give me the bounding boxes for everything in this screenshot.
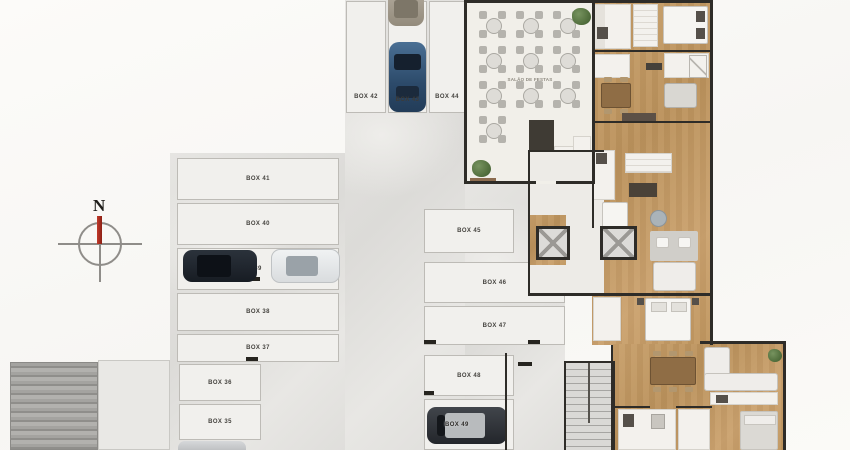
wall (592, 50, 713, 52)
wall (528, 150, 530, 295)
closet-a (633, 4, 658, 47)
stove-icon (716, 395, 728, 403)
parking-box-41: BOX 41 (177, 158, 339, 200)
elevator-icon (536, 226, 570, 260)
parking-box-35-label: BOX 35 (208, 419, 232, 425)
car-windshield (394, 54, 421, 70)
pillow (696, 28, 705, 39)
parking-box-40: BOX 40 (177, 203, 339, 245)
wall (564, 361, 615, 363)
party-table (515, 10, 545, 40)
counter-b (710, 392, 778, 405)
door-gap (536, 181, 556, 184)
laundry-a (593, 150, 615, 200)
parking-box-36: BOX 36 (179, 364, 261, 401)
car-icon (178, 441, 246, 450)
garage-ramp (10, 362, 98, 450)
wall-stub (424, 391, 434, 395)
dining-table-a (601, 83, 631, 108)
party-table (478, 115, 508, 145)
party-table (552, 45, 582, 75)
chairs (604, 77, 612, 82)
wall (505, 353, 507, 450)
bathroom-a2 (664, 53, 709, 78)
wall-stub (424, 340, 436, 344)
party-table (552, 80, 582, 110)
pillow (651, 302, 667, 312)
party-table (515, 45, 545, 75)
daybed (653, 262, 696, 291)
parking-box-46-label: BOX 46 (483, 280, 507, 286)
counter-strip (625, 153, 672, 173)
washer-icon (596, 153, 607, 164)
parking-box-36-label: BOX 36 (208, 380, 232, 386)
dining-table-b (650, 357, 696, 385)
tv-rack (646, 63, 662, 70)
wall (676, 406, 712, 408)
wall-stub (246, 357, 258, 361)
party-table (478, 10, 508, 40)
parking-box-47-label: BOX 47 (483, 323, 507, 329)
wall-stub (518, 362, 532, 366)
wall (592, 0, 595, 184)
party-hall-label: SALÃO DE FESTAS (498, 77, 562, 82)
wall (592, 184, 594, 228)
parking-box-45-label: BOX 45 (457, 228, 481, 234)
parking-box-37: BOX 37 (177, 334, 339, 362)
kitchen-b (618, 409, 676, 450)
plant-icon (572, 8, 591, 25)
party-table (478, 80, 508, 110)
car-icon (388, 0, 424, 26)
compass-rose: N (58, 196, 142, 288)
parking-box-49-label: BOX 49 (445, 422, 469, 428)
armchair (678, 237, 691, 248)
table-dark (629, 183, 657, 197)
car-roof (394, 0, 418, 18)
parking-box-42-label: BOX 42 (354, 94, 378, 100)
party-table (515, 80, 545, 110)
hall-b (678, 409, 710, 450)
bed-master (663, 6, 708, 44)
compass-needle-icon (97, 216, 102, 244)
appliance-icon (623, 414, 634, 427)
wall (700, 341, 786, 344)
parking-box-44-label: BOX 44 (435, 94, 459, 100)
bathroom-a1 (594, 54, 630, 78)
plant-icon (768, 349, 782, 362)
parking-box-47: BOX 47 (424, 306, 565, 345)
wall (528, 150, 604, 152)
car-windshield (437, 415, 445, 436)
bathroom-b (593, 297, 621, 341)
nightstand (637, 298, 644, 305)
shower (689, 55, 707, 78)
floor-plan: BOX 42 BOX 44 BOX 41 BOX 40 39 BOX 38 BO… (0, 0, 850, 450)
kitchen-a (594, 4, 631, 49)
wall (783, 341, 786, 450)
parking-box-35: BOX 35 (179, 404, 261, 440)
parking-box-41-label: BOX 41 (246, 176, 270, 182)
parking-box-48-label: BOX 48 (457, 373, 481, 379)
wall (564, 361, 566, 450)
parking-box-42: BOX 42 (346, 1, 386, 113)
round-table (650, 210, 667, 227)
wall (464, 0, 595, 3)
compass-north-label: N (93, 196, 105, 216)
sofa-b-seat (704, 373, 778, 391)
wall (612, 406, 650, 408)
parking-box-38-label: BOX 38 (246, 309, 270, 315)
fridge-icon (651, 414, 665, 429)
car-icon (183, 250, 257, 282)
chairs (653, 351, 661, 356)
parking-box-40-label: BOX 40 (246, 221, 270, 227)
parking-box-38: BOX 38 (177, 293, 339, 331)
wall-stub (528, 340, 540, 344)
stair-divider (588, 363, 590, 423)
wall (528, 293, 713, 296)
bed-b2 (645, 298, 691, 341)
pillow (696, 11, 705, 22)
parking-box-37-label: BOX 37 (246, 345, 270, 351)
wall (592, 121, 713, 123)
stove-icon (597, 27, 608, 39)
sofa-a (664, 83, 697, 108)
parking-box-43-label: BOX 43 (388, 97, 427, 103)
wall (592, 0, 713, 3)
elevator-icon (600, 226, 637, 260)
car-windshield (286, 256, 318, 276)
car-icon (271, 249, 340, 283)
parking-box-48: BOX 48 (424, 355, 514, 396)
parking-box-45: BOX 45 (424, 209, 514, 253)
wall (464, 0, 467, 184)
pillow (671, 302, 687, 312)
nightstand (692, 298, 699, 305)
parking-box-44: BOX 44 (429, 1, 465, 113)
car-windshield (197, 255, 231, 277)
garage-side-panel (98, 360, 170, 450)
pillow (744, 415, 776, 425)
armchair (656, 237, 669, 248)
bed-b3 (740, 411, 778, 450)
plant-icon (472, 160, 491, 177)
party-table (478, 45, 508, 75)
